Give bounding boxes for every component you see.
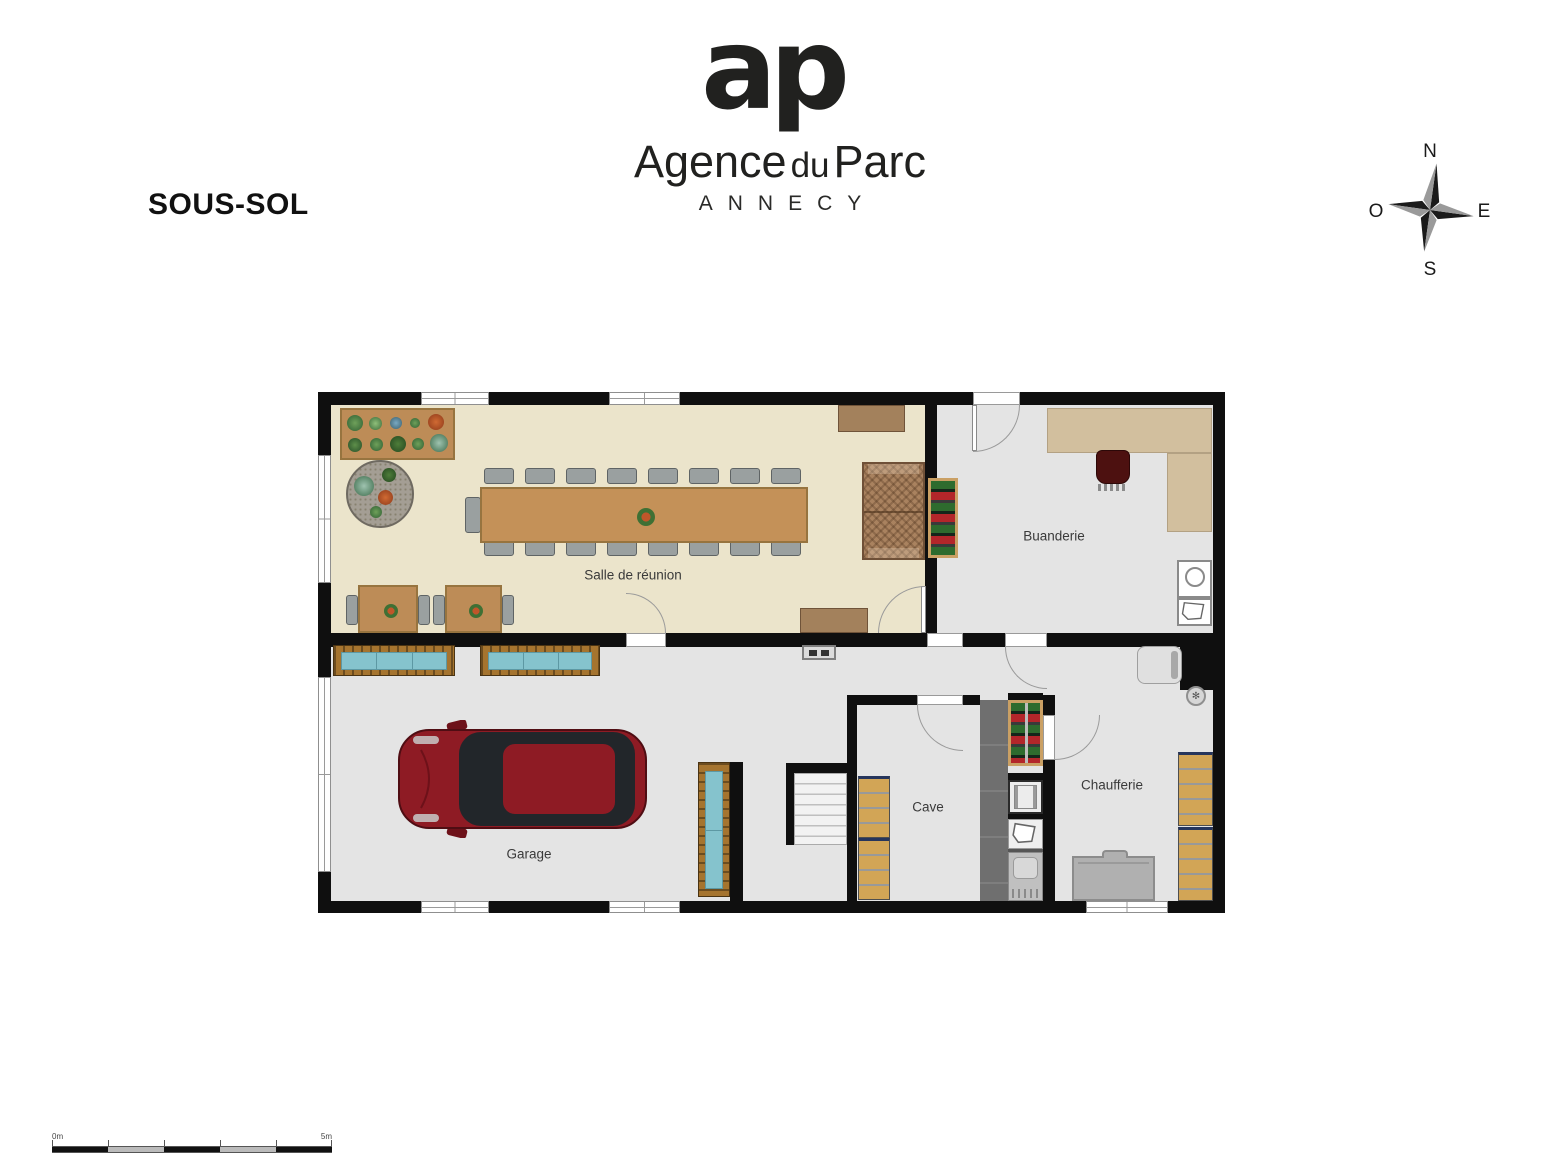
door-opening	[973, 392, 1020, 405]
table-centerpiece-plant	[469, 604, 483, 618]
room-label-meeting: Salle de réunion	[584, 568, 682, 583]
boiler-unit	[1072, 856, 1155, 901]
dumbwaiter	[1008, 780, 1043, 814]
window	[318, 455, 331, 583]
wall-segment	[786, 763, 794, 845]
chair	[433, 595, 445, 625]
window	[421, 392, 489, 405]
chair	[771, 468, 801, 484]
sideboard	[800, 608, 868, 633]
plant-table	[340, 408, 455, 460]
sofa	[862, 462, 925, 560]
storage-shelf	[1178, 752, 1213, 826]
wall-segment	[787, 763, 847, 773]
office-chair	[1096, 450, 1130, 484]
potted-plant	[370, 438, 383, 451]
heater-panel	[1171, 651, 1178, 679]
chair	[607, 468, 637, 484]
washing-machine	[1177, 560, 1212, 598]
door-opening	[1005, 633, 1047, 647]
potted-plant	[428, 414, 444, 430]
chair	[730, 468, 760, 484]
potted-plant	[370, 506, 382, 518]
door-opening	[917, 695, 963, 705]
room-label-garage: Garage	[506, 847, 551, 862]
potted-plant	[354, 476, 374, 496]
conference-table	[480, 487, 808, 543]
window	[421, 901, 489, 913]
wall-segment	[730, 762, 743, 902]
chair	[418, 595, 430, 625]
compass-south-label: S	[1424, 259, 1437, 280]
compass-north-label: N	[1423, 141, 1437, 162]
wall-segment	[666, 633, 927, 647]
floor-plan: ✻ Salle de réunion Buanderie Garage Cave…	[318, 392, 1225, 913]
agency-logo-monogram: ap	[667, 14, 877, 134]
room-label-cellar: Cave	[912, 800, 944, 815]
boiler-line	[1078, 862, 1149, 864]
potted-plant	[410, 418, 420, 428]
boiler-tab	[1102, 850, 1128, 858]
chair	[502, 595, 514, 625]
garage-bench	[698, 762, 730, 897]
chair	[648, 468, 678, 484]
chair	[484, 468, 514, 484]
electrical-switch	[809, 650, 817, 656]
vent-grille	[1012, 889, 1039, 898]
table-centerpiece-plant	[384, 604, 398, 618]
scale-segment	[164, 1146, 220, 1153]
laundry-desk-return	[1167, 453, 1212, 532]
scale-segment	[52, 1146, 108, 1153]
potted-plant	[430, 434, 448, 452]
compass-rose-icon: N E S O	[1360, 140, 1500, 280]
wall-segment	[1180, 633, 1225, 690]
storage-shelf	[858, 776, 890, 838]
potted-plant	[412, 438, 424, 450]
utility-sink	[1008, 852, 1043, 901]
electrical-box	[802, 645, 836, 660]
staircase	[794, 773, 847, 845]
office-chair-base	[1098, 484, 1128, 491]
scale-bar: 0m 5m	[52, 1132, 332, 1156]
sofa-armrest	[868, 464, 919, 474]
electrical-switch	[821, 650, 829, 656]
scale-segment	[108, 1146, 164, 1153]
wall-segment	[1043, 695, 1055, 715]
floorplan-page: SOUS-SOL ap AgenceduParc ANNECY N E S O	[0, 0, 1560, 1170]
logo-name-last: Parc	[834, 136, 927, 187]
agency-logo-city: ANNECY	[530, 192, 1030, 216]
small-table	[358, 585, 418, 633]
valve-icon: ✻	[1186, 686, 1206, 706]
potted-plant	[390, 417, 402, 429]
window	[318, 677, 331, 872]
table-centerpiece-plant	[637, 508, 655, 526]
scale-start-label: 0m	[52, 1132, 63, 1141]
bench-cushion	[705, 771, 723, 889]
round-planter	[346, 460, 414, 528]
logo-name-mid: du	[787, 146, 834, 185]
bench-cushion	[488, 652, 592, 670]
agency-logo-name: AgenceduParc	[530, 136, 1030, 188]
chair	[465, 497, 481, 533]
dumbwaiter-cab	[1014, 785, 1037, 809]
wall-segment	[1008, 693, 1043, 700]
window	[609, 901, 680, 913]
water-heater	[1137, 646, 1182, 684]
sideboard	[838, 405, 905, 432]
wall-segment	[1043, 760, 1055, 901]
storage-shelf	[1178, 827, 1213, 901]
garage-bench	[480, 645, 600, 676]
basket-icon	[1179, 600, 1208, 622]
scale-segment	[276, 1146, 332, 1153]
window	[609, 392, 680, 405]
sink-basin	[1013, 857, 1038, 879]
chair	[689, 468, 719, 484]
potted-plant	[348, 438, 362, 452]
chair	[566, 468, 596, 484]
storage-rack	[1008, 700, 1043, 766]
basket-icon	[1009, 820, 1040, 846]
storage-rack	[928, 478, 958, 558]
potted-plant	[347, 415, 363, 431]
door-opening	[626, 633, 666, 647]
door-opening	[1043, 715, 1055, 760]
compass-west-label: O	[1369, 201, 1384, 222]
wall-segment	[1008, 773, 1043, 780]
room-label-boiler: Chaufferie	[1081, 778, 1143, 793]
wall-segment	[963, 633, 1005, 647]
compass-east-label: E	[1478, 201, 1491, 222]
sofa-cushion-divider	[864, 511, 923, 513]
car-top-view	[395, 720, 650, 838]
potted-plant	[369, 417, 382, 430]
scale-segment	[220, 1146, 276, 1153]
wall-segment	[847, 695, 917, 705]
laundry-basket	[1008, 819, 1043, 849]
potted-plant	[378, 490, 393, 505]
chair	[525, 468, 555, 484]
room-label-laundry: Buanderie	[1023, 529, 1085, 544]
wall-segment	[847, 695, 857, 901]
chair	[346, 595, 358, 625]
potted-plant	[382, 468, 396, 482]
page-title: SOUS-SOL	[148, 188, 309, 222]
logo-name-first: Agence	[634, 136, 787, 187]
wall-segment	[963, 695, 980, 705]
storage-shelf	[858, 838, 890, 900]
laundry-desk	[1047, 408, 1212, 453]
small-table	[445, 585, 502, 633]
potted-plant	[390, 436, 406, 452]
duct-strip	[980, 700, 1008, 901]
door-opening	[927, 633, 963, 647]
rack-pole	[1025, 703, 1028, 763]
garage-bench	[333, 645, 455, 676]
washer-drum	[1185, 567, 1205, 587]
window	[1086, 901, 1168, 913]
sofa-armrest	[868, 548, 919, 558]
laundry-basket	[1177, 598, 1212, 626]
valve-glyph: ✻	[1192, 691, 1200, 702]
bench-cushion	[341, 652, 447, 670]
